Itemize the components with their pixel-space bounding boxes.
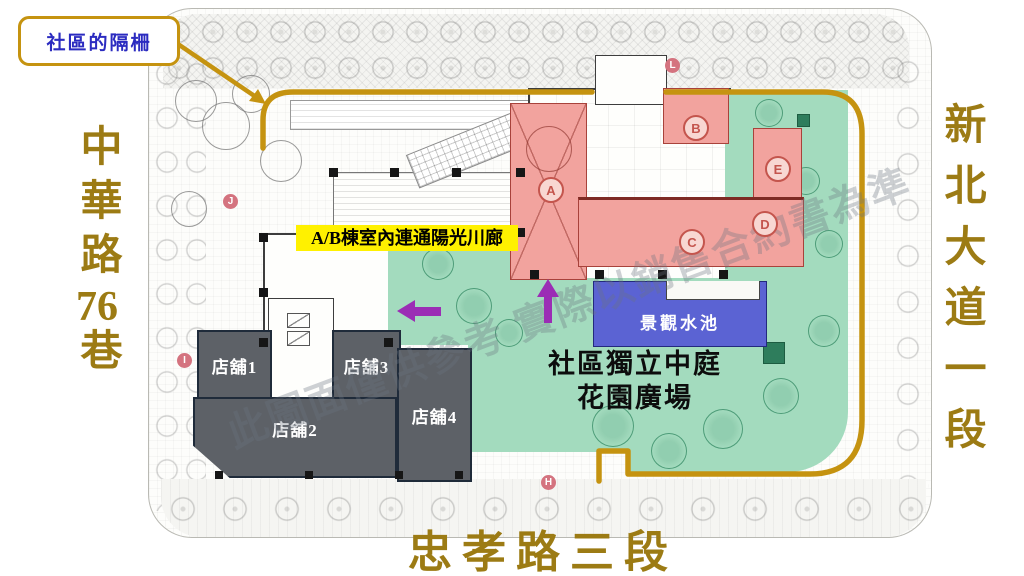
pool-deck-notch bbox=[666, 281, 760, 300]
tree-icon bbox=[651, 433, 687, 469]
courtyard-label-line2: 花園廣場 bbox=[530, 382, 740, 416]
elevator-icon bbox=[287, 313, 310, 328]
road-left-part1: 中華路 bbox=[74, 124, 120, 286]
pool-label: 景觀水池 bbox=[594, 309, 766, 334]
column bbox=[305, 471, 313, 479]
road-left-number: 76 bbox=[74, 286, 120, 328]
tree-icon bbox=[422, 248, 454, 280]
column bbox=[390, 168, 399, 177]
tree-icon bbox=[808, 315, 840, 347]
column bbox=[719, 270, 728, 279]
hedge-band bbox=[163, 14, 909, 88]
column bbox=[516, 168, 525, 177]
shop-2-label: 店舖2 bbox=[272, 416, 318, 441]
road-label-zhonghua: 中華路76巷 bbox=[68, 124, 128, 440]
road-label-zhongxiao: 忠孝路三段 bbox=[393, 516, 693, 576]
tree-icon bbox=[260, 140, 302, 182]
site-plan-page: 景觀水池 店舖1 店舖3 店舖4 店舖2 此圖面僅供參考 實際以銷售合約書為準 bbox=[0, 0, 1024, 576]
spiral-stair-icon bbox=[526, 126, 572, 172]
column bbox=[455, 471, 463, 479]
column bbox=[658, 270, 667, 279]
tree-icon bbox=[763, 378, 799, 414]
column bbox=[452, 168, 461, 177]
road-left-part2: 巷 bbox=[74, 328, 120, 382]
shop-4: 店舖4 bbox=[397, 348, 472, 482]
road-label-xinbei: 新北大道一段 bbox=[932, 102, 992, 502]
shop-1-label: 店舖1 bbox=[212, 353, 258, 378]
stair-block bbox=[595, 55, 667, 105]
street-marker-h: H bbox=[541, 475, 556, 490]
shop-2: 店舖2 bbox=[193, 397, 397, 478]
column bbox=[215, 471, 223, 479]
column bbox=[384, 338, 393, 347]
courtyard-label: 社區獨立中庭 花園廣場 bbox=[530, 348, 740, 416]
tree-icon bbox=[171, 191, 207, 227]
tree-icon bbox=[815, 230, 843, 258]
column bbox=[259, 288, 268, 297]
garden-area bbox=[468, 345, 530, 452]
fence-callout: 社區的隔柵 bbox=[18, 16, 180, 66]
core-block bbox=[268, 298, 334, 399]
street-marker-j: J bbox=[223, 194, 238, 209]
column bbox=[530, 270, 539, 279]
shop-4-label: 店舖4 bbox=[412, 403, 458, 428]
planter-box bbox=[797, 114, 810, 127]
right-tree-strip bbox=[893, 57, 929, 519]
tree-icon bbox=[456, 288, 492, 324]
elevator-icon bbox=[287, 331, 310, 346]
street-marker-i: I bbox=[177, 353, 192, 368]
landscape-pool: 景觀水池 bbox=[593, 281, 767, 347]
column bbox=[329, 168, 338, 177]
building-b-marker: B bbox=[683, 115, 709, 141]
column bbox=[595, 270, 604, 279]
column bbox=[259, 233, 268, 242]
corridor-label: A/B棟室內連通陽光川廊 bbox=[296, 225, 518, 251]
building-a-marker: A bbox=[538, 177, 564, 203]
tree-icon bbox=[232, 75, 270, 113]
building-e-marker: E bbox=[765, 156, 791, 182]
street-marker-l: L bbox=[665, 58, 680, 73]
shop-3-label: 店舖3 bbox=[344, 353, 390, 378]
fence-callout-label: 社區的隔柵 bbox=[46, 28, 151, 55]
tree-icon bbox=[495, 319, 523, 347]
column bbox=[259, 338, 268, 347]
courtyard-label-line1: 社區獨立中庭 bbox=[530, 348, 740, 382]
building-d-marker: D bbox=[752, 211, 778, 237]
tree-icon bbox=[755, 99, 783, 127]
column bbox=[395, 471, 403, 479]
building-c-marker: C bbox=[679, 229, 705, 255]
